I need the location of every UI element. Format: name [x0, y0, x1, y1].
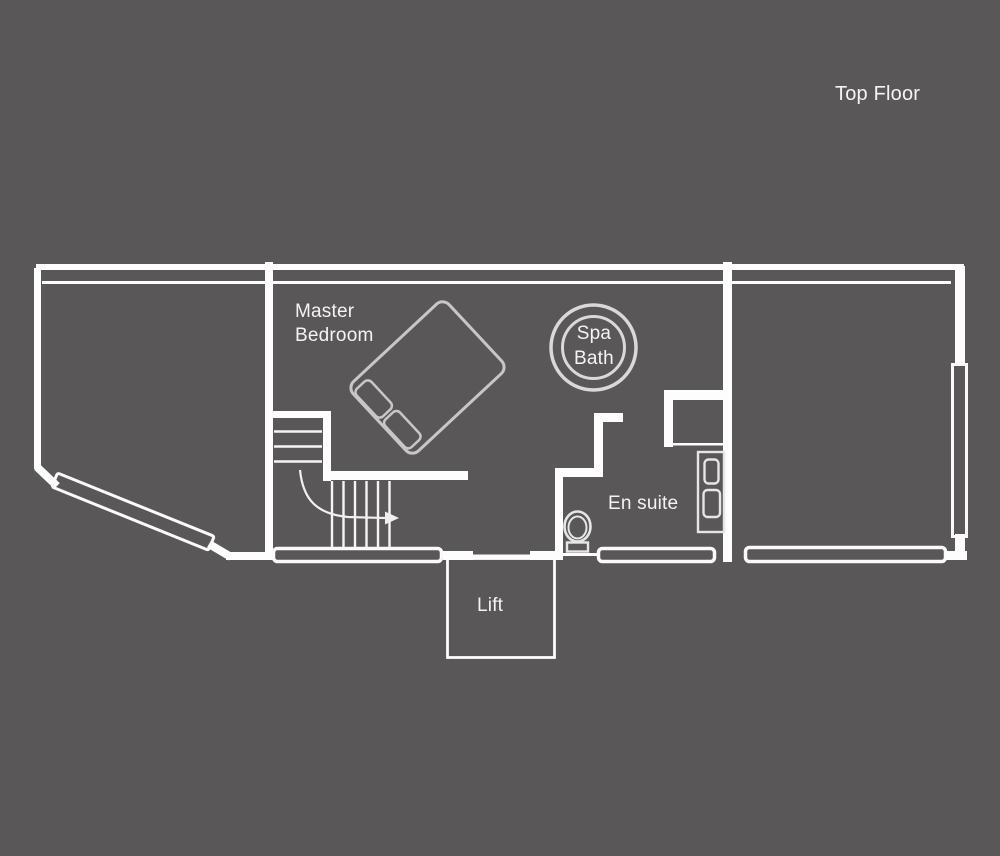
stair-landing-wall [323, 471, 468, 480]
cupboard-bottom-line [673, 443, 723, 446]
toilet [565, 512, 591, 552]
pillow-right [382, 409, 423, 450]
spa-bath-label-line1: Spa [577, 323, 612, 344]
master-bedroom-label-line1: Master [295, 301, 355, 322]
en-suite-label: En suite [608, 493, 678, 514]
sink-top [705, 460, 719, 484]
top-wall-inner-right [732, 281, 951, 284]
right-window [953, 365, 967, 537]
right-wall-top [955, 266, 965, 366]
toilet-bowl-inner [569, 517, 587, 539]
ensuite-bottom-line [563, 553, 598, 556]
stair-top-wall [273, 411, 331, 418]
stair-treads-lower [332, 481, 390, 548]
ensuite-step-wall-upper [594, 413, 623, 422]
ensuite-wall-left [555, 470, 563, 560]
toilet-tank [567, 543, 588, 552]
lift-door-line [473, 555, 530, 558]
top-wall-outer [36, 264, 964, 270]
sink-bottom [704, 490, 721, 517]
floor-plan-page: Top Floor Master Bedroom Spa Bath En sui… [0, 0, 1000, 856]
vanity [698, 452, 724, 532]
left-wall [34, 268, 41, 469]
bed-outline [347, 298, 508, 457]
bottom-window-right [746, 548, 946, 562]
stair-side-wall [323, 411, 331, 481]
walls [34, 262, 967, 562]
top-wall-inner-left [42, 281, 265, 284]
bottom-window-middle [599, 549, 715, 562]
pillow-left [353, 378, 394, 419]
bedroom-divider-wall [265, 262, 273, 560]
staircase [274, 432, 399, 549]
cupboard-side-wall [664, 390, 673, 447]
floor-plan-drawing: Top Floor Master Bedroom Spa Bath En sui… [0, 0, 1000, 856]
floor-title-label: Top Floor [835, 83, 920, 105]
bay-window [52, 473, 214, 550]
spa-bath-label-line2: Bath [574, 348, 614, 369]
lift-label: Lift [477, 595, 504, 616]
top-wall-inner-center [273, 281, 723, 284]
bottom-window-left [274, 549, 442, 562]
stair-treads-upper [274, 432, 322, 462]
master-bedroom-label-line2: Bedroom [295, 325, 374, 346]
bed [347, 298, 508, 457]
